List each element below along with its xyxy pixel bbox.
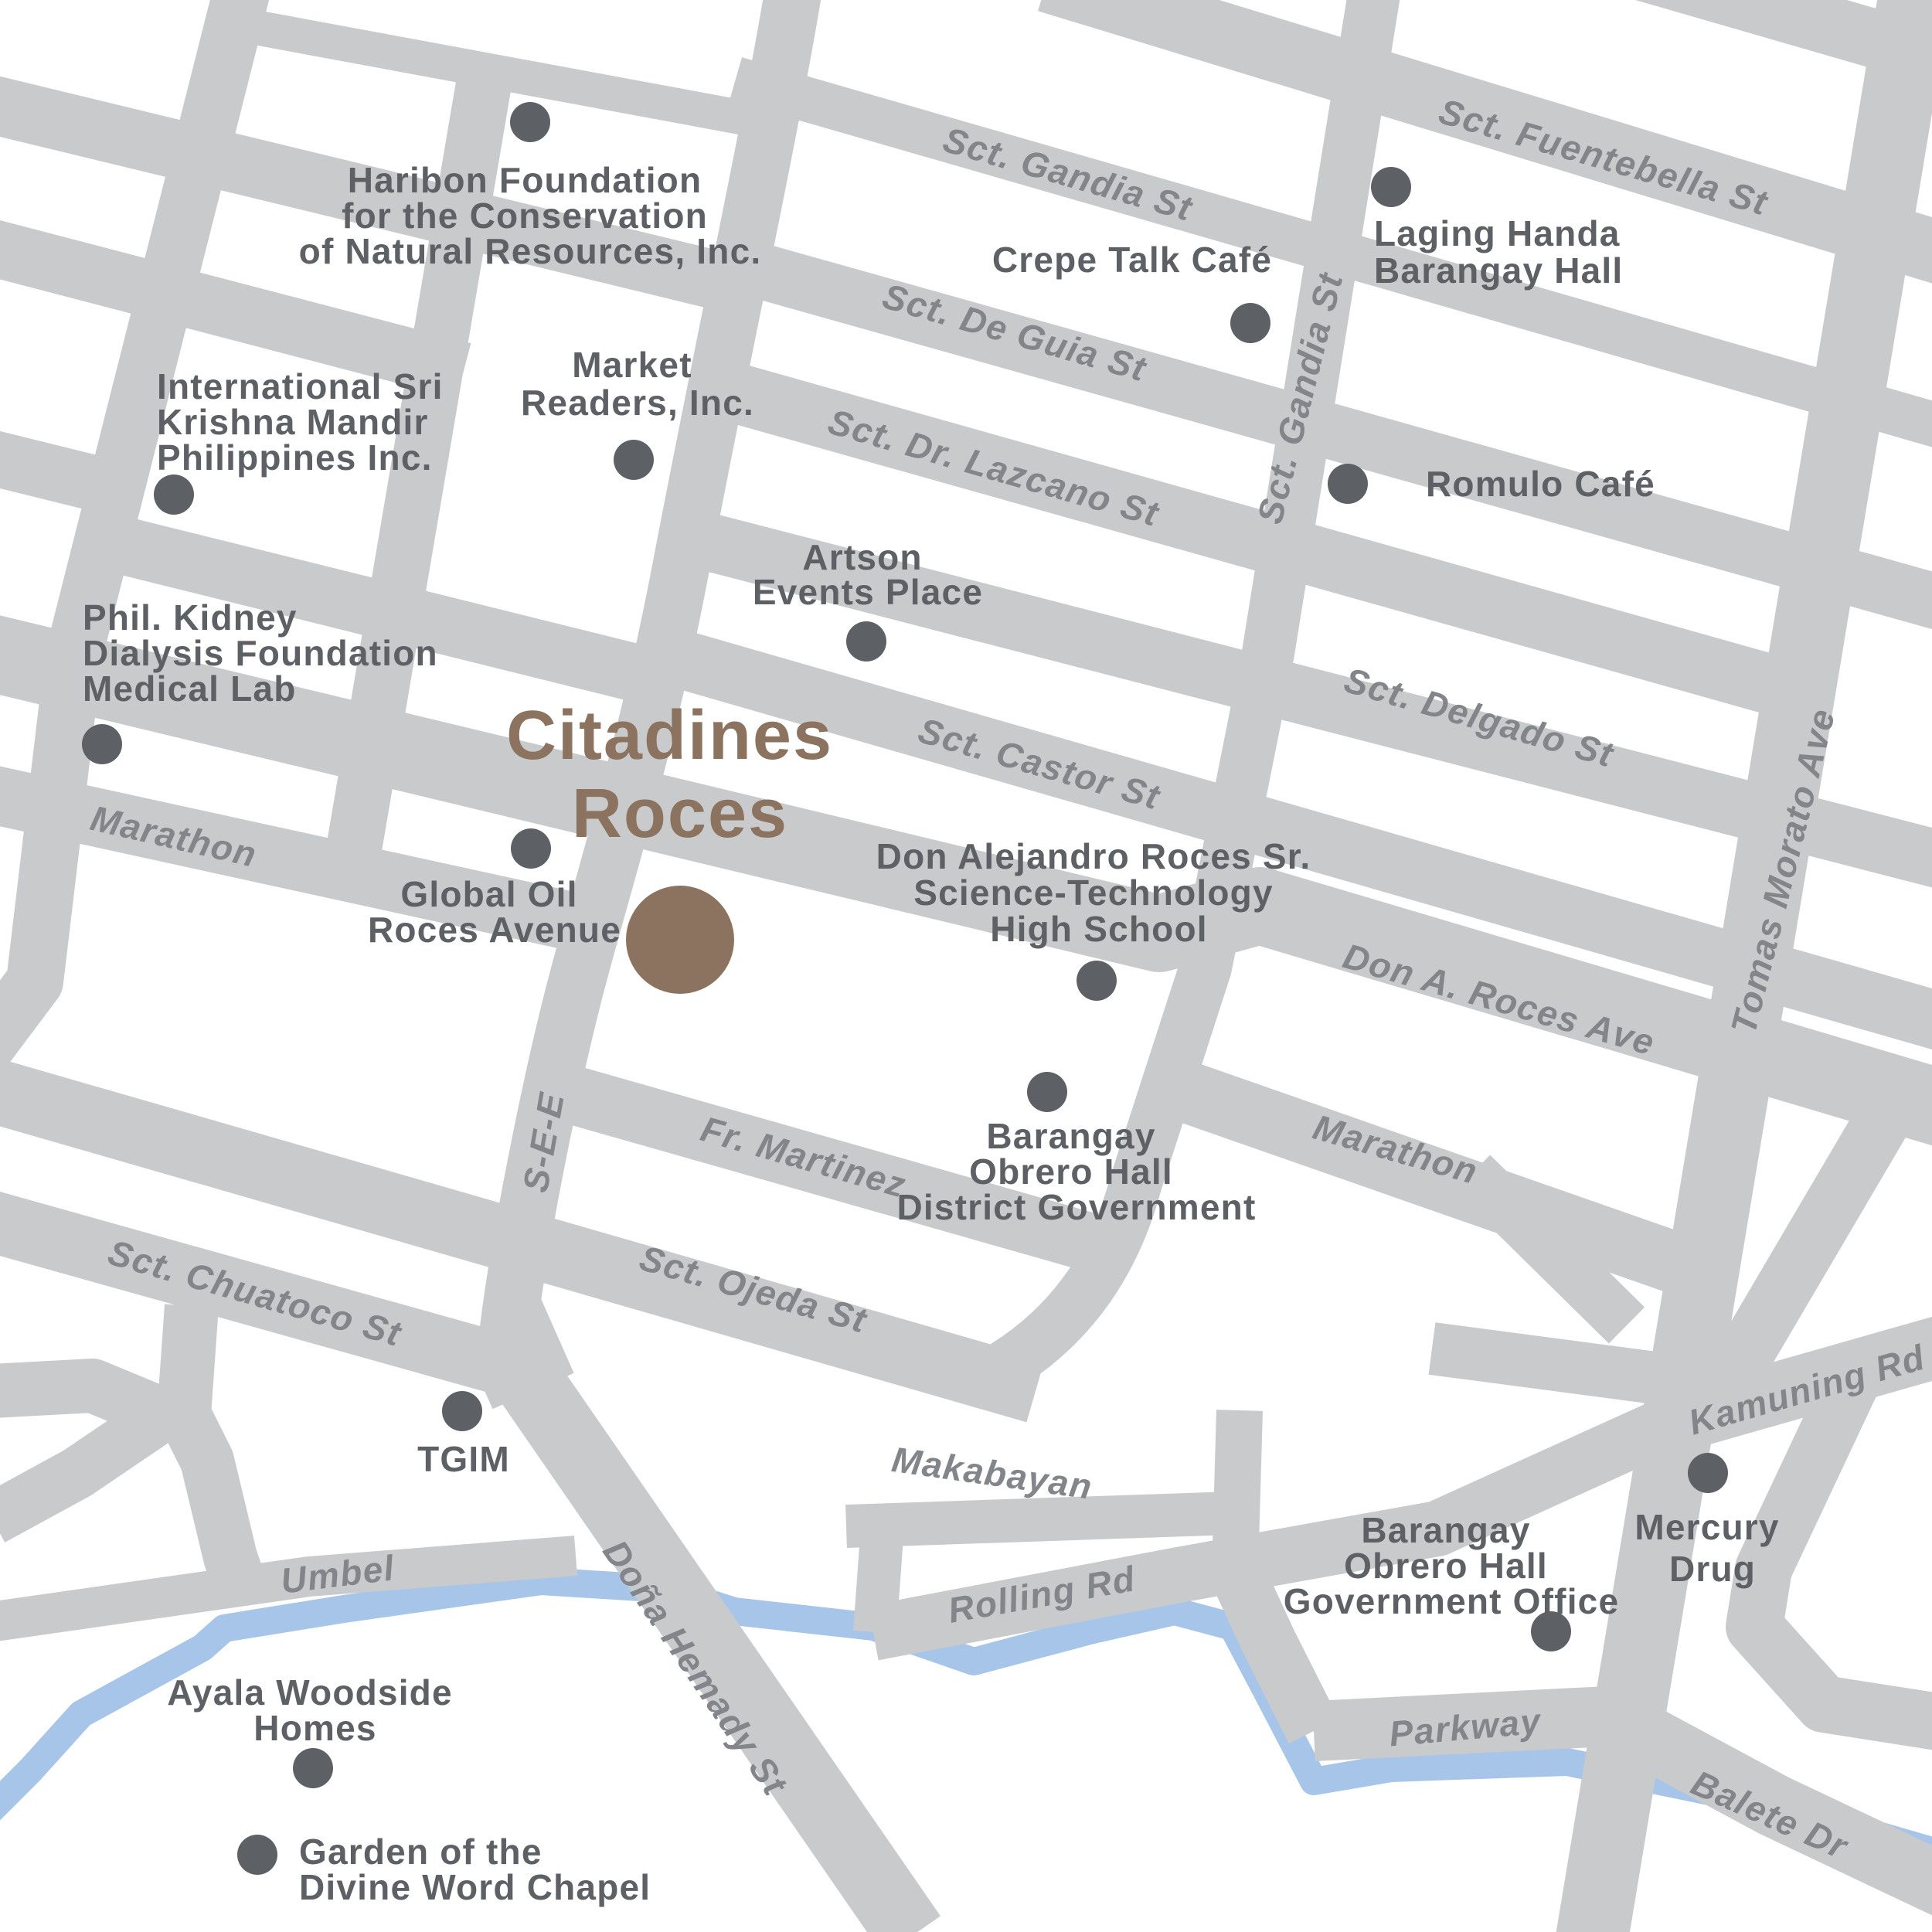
svg-text:TGIM: TGIM [417,1439,510,1479]
svg-text:Romulo Café: Romulo Café [1426,464,1655,504]
svg-text:Haribon Foundation for the Con: Haribon Foundation for the Conservation … [299,160,762,271]
svg-text:International Sri Krishna Mand: International Sri Krishna Mandir Philipp… [157,366,454,478]
svg-text:Crepe Talk Café: Crepe Talk Café [992,240,1272,280]
svg-text:Global Oil Roces Avenue: Global Oil Roces Avenue [368,874,621,950]
svg-text:Laging Handa Barangay Hall: Laging Handa Barangay Hall [1374,213,1631,291]
